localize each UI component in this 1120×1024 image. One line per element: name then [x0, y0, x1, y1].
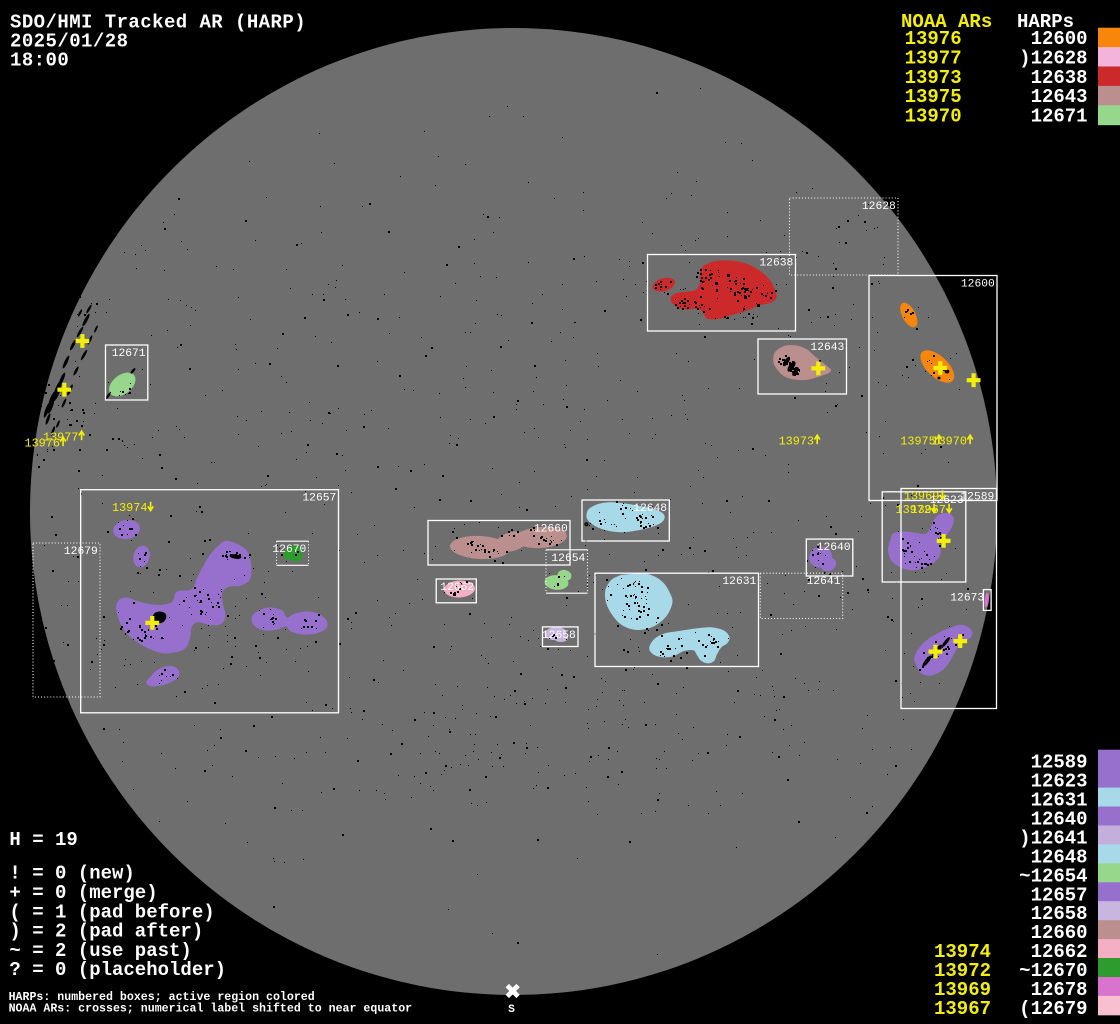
svg-text:12643: 12643: [810, 342, 844, 354]
svg-text:18:00: 18:00: [10, 49, 69, 71]
svg-text:12648: 12648: [633, 503, 667, 515]
svg-text:12679: 12679: [64, 546, 98, 558]
svg-text:12631: 12631: [722, 576, 756, 588]
svg-text:12658: 12658: [542, 630, 576, 642]
svg-text:12640: 12640: [817, 542, 851, 554]
svg-text:12671: 12671: [112, 348, 146, 360]
svg-text:12673: 12673: [950, 593, 984, 605]
svg-text:13970: 13970: [905, 106, 962, 128]
svg-text:12654: 12654: [551, 553, 585, 565]
svg-text:13975: 13975: [900, 435, 935, 449]
svg-text:13974: 13974: [112, 501, 147, 515]
svg-text:12660: 12660: [534, 524, 568, 536]
svg-text:12670: 12670: [272, 544, 306, 556]
svg-text:12628: 12628: [862, 201, 896, 213]
svg-text:13976: 13976: [25, 437, 60, 451]
svg-text:13972: 13972: [896, 503, 931, 517]
svg-text:12657: 12657: [302, 493, 336, 505]
svg-text:(12679: (12679: [1019, 998, 1087, 1020]
svg-text:S: S: [508, 1004, 515, 1016]
svg-text:13969: 13969: [904, 490, 939, 504]
svg-text:13973: 13973: [779, 435, 814, 449]
svg-text:? = 0 (placeholder): ? = 0 (placeholder): [9, 959, 226, 981]
svg-text:12600: 12600: [961, 279, 995, 291]
svg-text:13967: 13967: [934, 998, 991, 1020]
svg-text:NOAA ARs: crosses; numerical l: NOAA ARs: crosses; numerical label shift…: [9, 1002, 413, 1015]
svg-text:12638: 12638: [759, 258, 793, 270]
svg-text:12671: 12671: [1031, 106, 1088, 128]
svg-text:13970: 13970: [932, 435, 967, 449]
svg-text:H = 19: H = 19: [9, 829, 77, 851]
svg-text:12641: 12641: [807, 576, 841, 588]
svg-text:12589: 12589: [960, 492, 994, 504]
svg-text:12662: 12662: [440, 582, 474, 594]
